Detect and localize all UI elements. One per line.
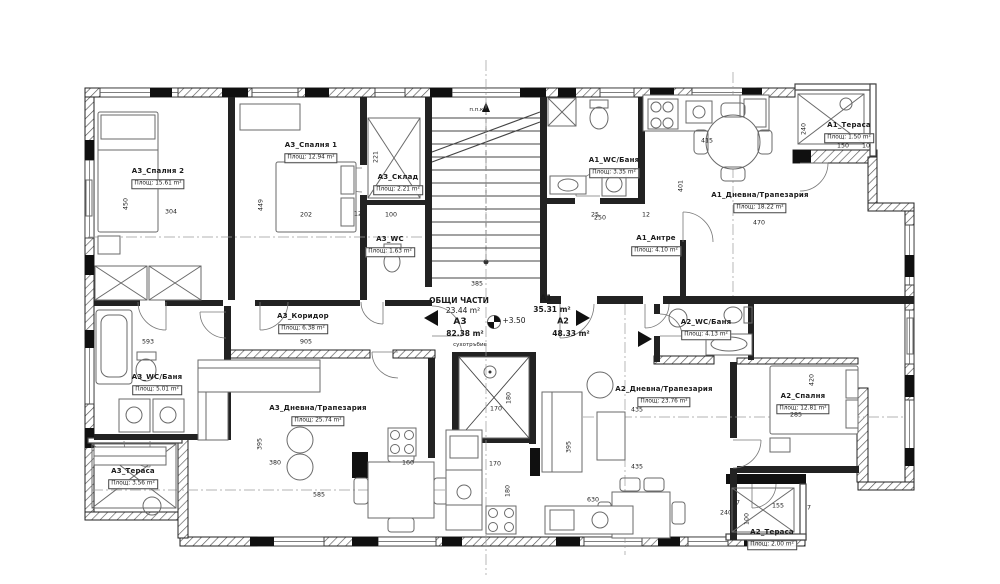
elevator: [459, 357, 529, 438]
floor-plan-drawing: [0, 0, 1000, 584]
entry-markers: [424, 310, 652, 347]
interior-walls: [94, 97, 914, 540]
floor-plan: ОБЩИ ЧАСТИ 23.44 m² А3 82.38 m² сухотръб…: [0, 0, 1000, 584]
